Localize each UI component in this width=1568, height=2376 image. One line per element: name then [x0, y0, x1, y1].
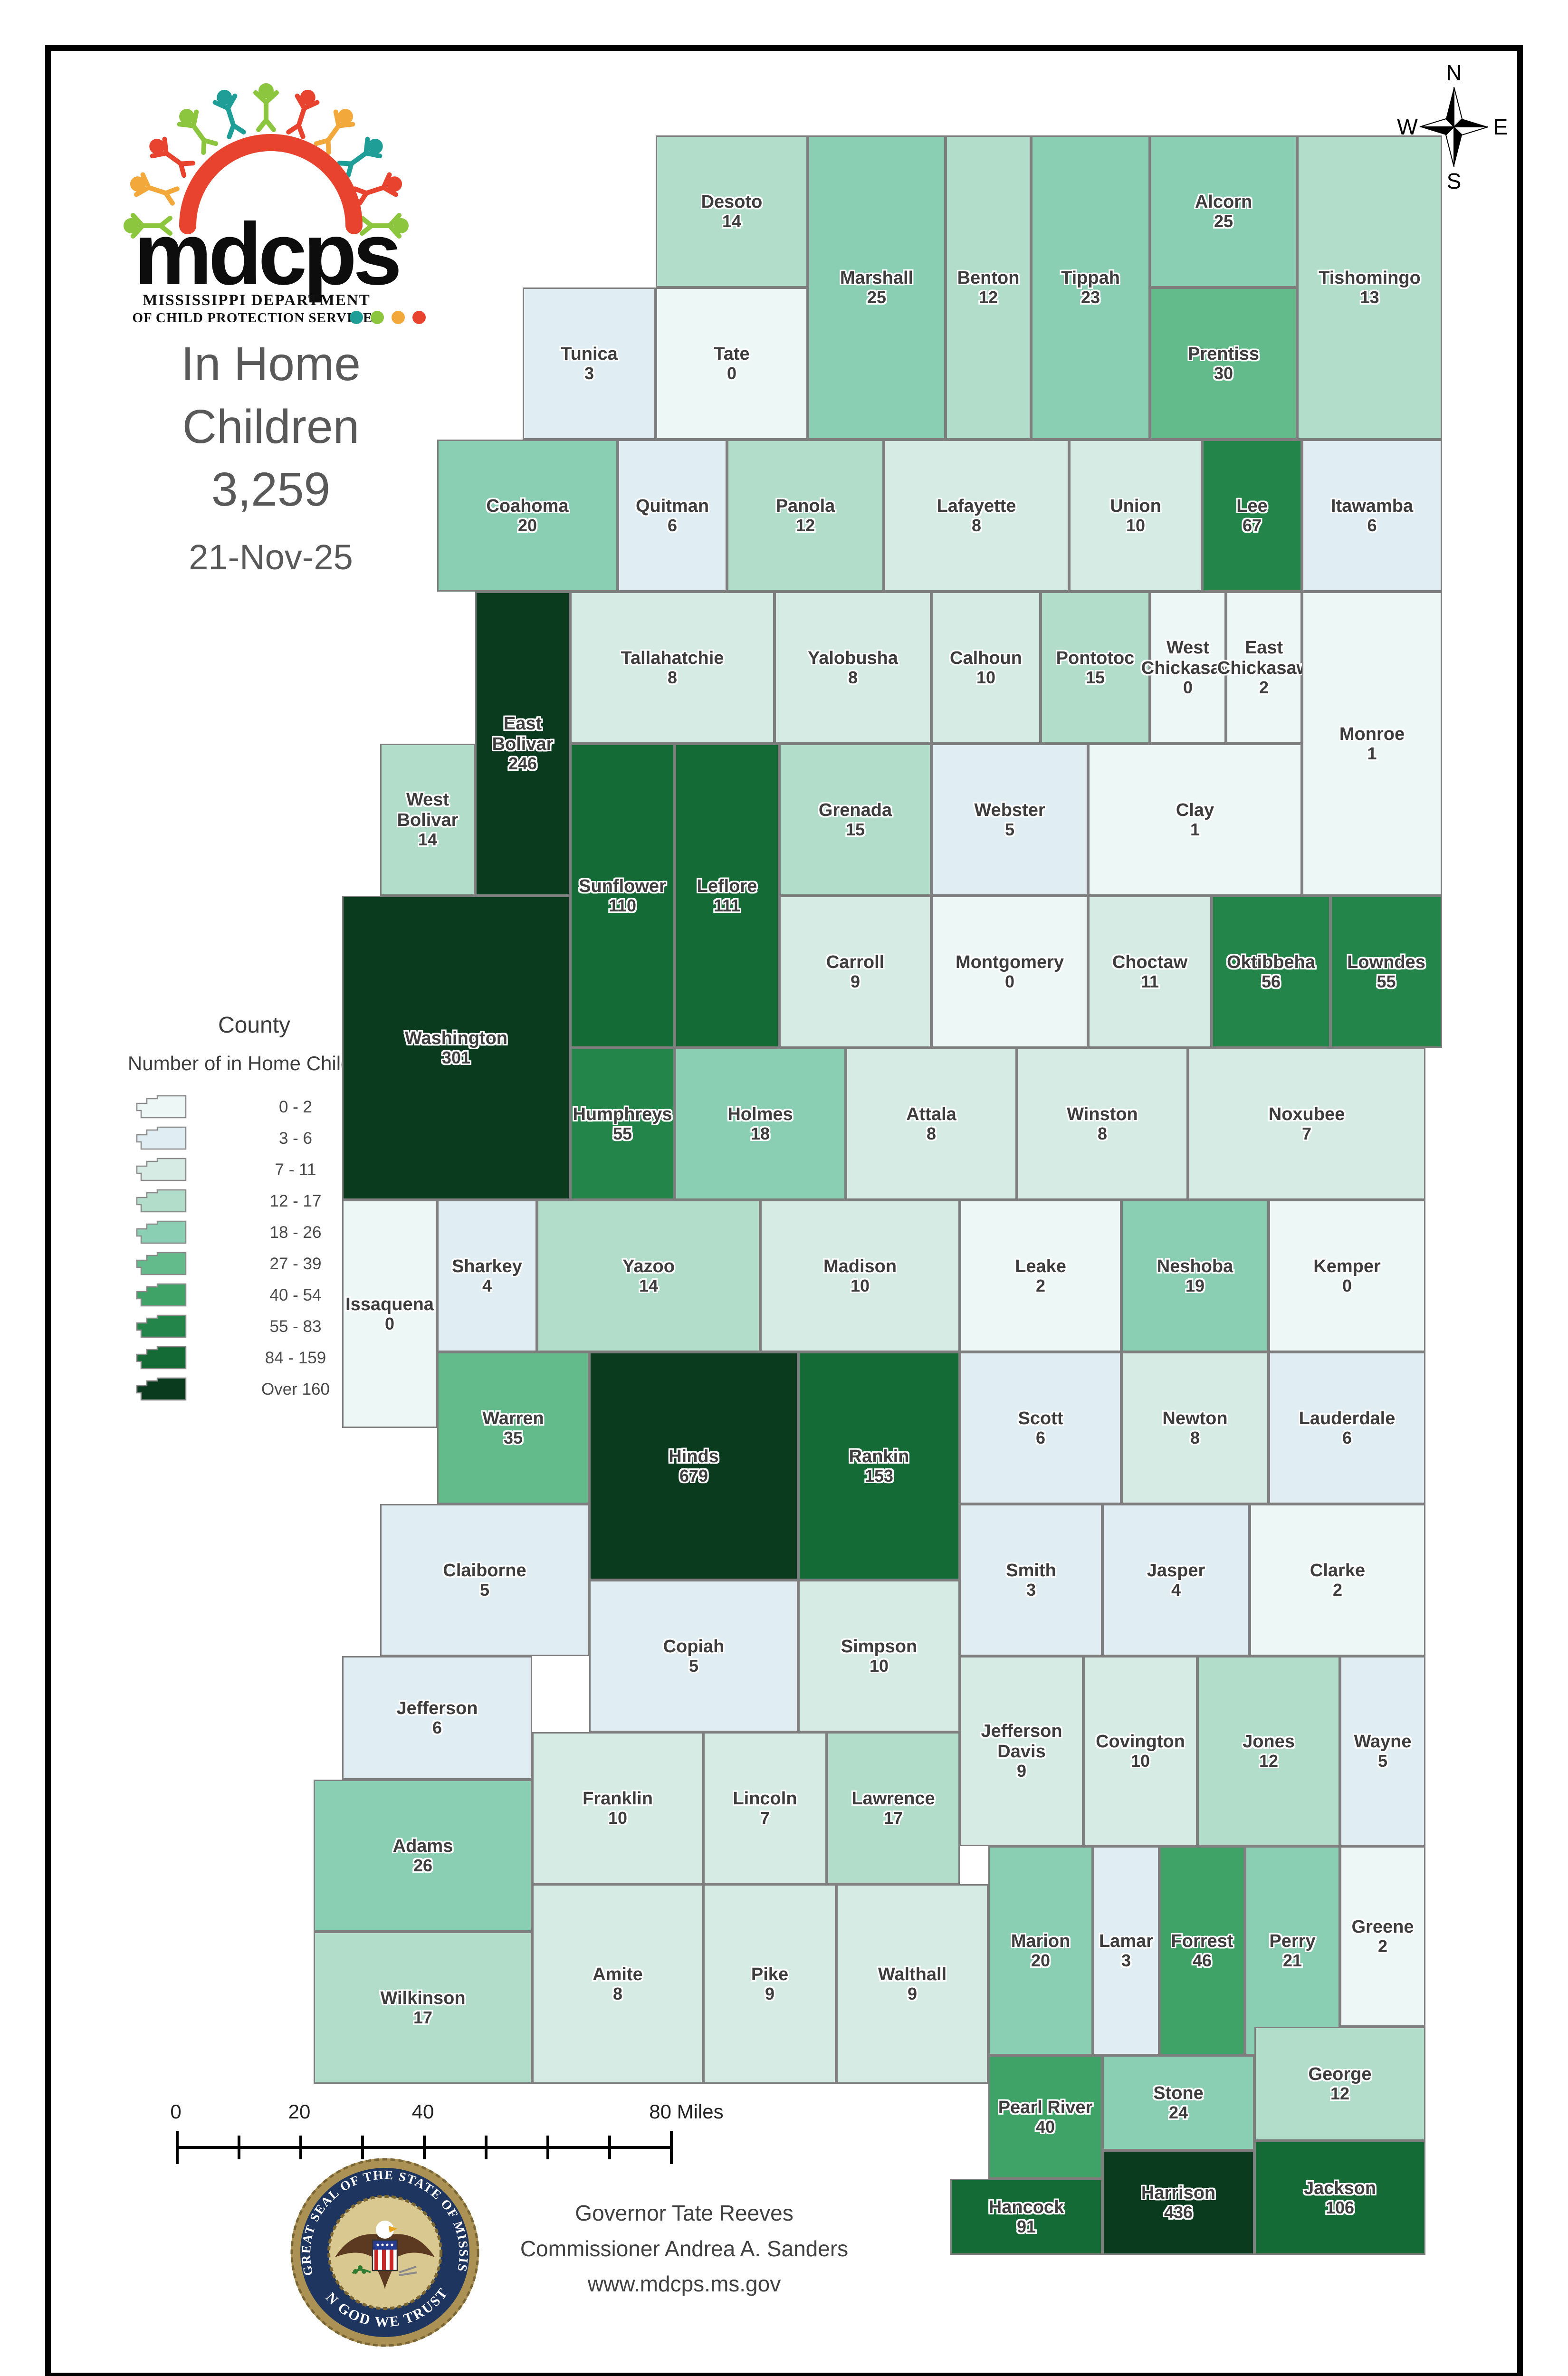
- county-name: Pontotoc: [1056, 648, 1135, 669]
- county-name: Jasper: [1147, 1561, 1205, 1581]
- county-region-sunflower: Sunflower110: [570, 744, 675, 1048]
- county-region-desoto: Desoto14: [656, 135, 808, 287]
- county-name: West Bolivar: [382, 790, 474, 830]
- county-name: Walthall: [878, 1964, 947, 1985]
- county-name: Issaquena: [345, 1294, 434, 1315]
- scale-bar: 0204080 Miles: [176, 2100, 670, 2167]
- county-value: 24: [1169, 2103, 1188, 2122]
- county-value: 25: [1214, 212, 1233, 231]
- county-value: 20: [1031, 1951, 1050, 1970]
- county-name: Prentiss: [1188, 344, 1259, 364]
- county-name: Rankin: [849, 1447, 909, 1467]
- county-region-lee: Lee67: [1202, 440, 1302, 592]
- county-name: Yazoo: [622, 1256, 675, 1277]
- county-value: 67: [1243, 516, 1262, 535]
- scale-tick: [670, 2131, 673, 2164]
- county-value: 13: [1360, 288, 1379, 307]
- county-value: 18: [751, 1124, 770, 1143]
- mississippi-county-map: Desoto14Marshall25Benton12Tippah23Alcorn…: [143, 135, 1454, 2260]
- county-region-pontotoc: Pontotoc15: [1041, 592, 1150, 744]
- county-name: Leflore: [697, 876, 757, 897]
- county-value: 10: [1131, 1752, 1150, 1771]
- county-region-jasper: Jasper4: [1102, 1504, 1250, 1656]
- county-region-lincoln: Lincoln7: [703, 1732, 827, 1884]
- scale-tick: [608, 2136, 611, 2159]
- county-value: 2: [1036, 1276, 1045, 1295]
- county-region-marshall: Marshall25: [808, 135, 946, 440]
- county-value: 153: [865, 1466, 893, 1485]
- county-region-coahoma: Coahoma20: [437, 440, 618, 592]
- county-value: 0: [385, 1314, 394, 1333]
- scale-tick: [176, 2131, 179, 2164]
- county-name: Tishomingo: [1319, 268, 1421, 288]
- county-name: Quitman: [636, 496, 709, 517]
- county-value: 12: [979, 288, 998, 307]
- county-region-montgomery: Montgomery0: [931, 896, 1088, 1048]
- county-name: Lamar: [1099, 1931, 1153, 1952]
- county-region-winston: Winston8: [1017, 1048, 1188, 1200]
- county-value: 0: [1005, 972, 1014, 991]
- scale-tick: [485, 2136, 488, 2159]
- county-name: Lincoln: [733, 1789, 797, 1809]
- county-region-neshoba: Neshoba19: [1121, 1200, 1269, 1352]
- county-region-monroe: Monroe1: [1302, 592, 1442, 896]
- county-region-marion: Marion20: [988, 1846, 1093, 2055]
- county-name: Clay: [1176, 800, 1214, 821]
- county-region-smith: Smith3: [960, 1504, 1102, 1656]
- county-name: Simpson: [841, 1637, 917, 1657]
- county-value: 246: [508, 754, 537, 773]
- county-value: 0: [1342, 1276, 1352, 1295]
- county-region-webster: Webster5: [931, 744, 1088, 896]
- county-region-west-bolivar: West Bolivar14: [380, 744, 475, 896]
- county-name: Covington: [1096, 1732, 1185, 1752]
- county-name: Marshall: [840, 268, 913, 288]
- county-name: Tippah: [1061, 268, 1120, 288]
- county-region-west-chickasaw: West Chickasaw0: [1150, 592, 1226, 744]
- county-region-harrison: Harrison436: [1102, 2150, 1254, 2255]
- county-region-warren: Warren35: [437, 1352, 589, 1504]
- county-region-stone: Stone24: [1102, 2055, 1254, 2150]
- county-name: Monroe: [1339, 724, 1405, 745]
- county-name: Calhoun: [950, 648, 1022, 669]
- governor-line: Governor Tate Reeves: [489, 2195, 879, 2231]
- county-region-clarke: Clarke2: [1250, 1504, 1425, 1656]
- county-value: 110: [609, 896, 636, 915]
- county-region-lawrence: Lawrence17: [827, 1732, 960, 1884]
- county-name: Attala: [906, 1104, 956, 1125]
- county-value: 9: [765, 1984, 774, 2003]
- county-name: Stone: [1153, 2083, 1204, 2104]
- scale-tick: [238, 2136, 240, 2159]
- county-name: Holmes: [727, 1104, 793, 1125]
- county-region-leake: Leake2: [960, 1200, 1121, 1352]
- county-region-madison: Madison10: [760, 1200, 960, 1352]
- county-region-east-bolivar: East Bolivar246: [475, 592, 570, 896]
- county-region-calhoun: Calhoun10: [931, 592, 1041, 744]
- county-name: Noxubee: [1269, 1104, 1345, 1125]
- county-region-benton: Benton12: [946, 135, 1031, 440]
- compass-east-label: E: [1493, 115, 1508, 139]
- website-line: www.mdcps.ms.gov: [489, 2266, 879, 2302]
- county-value: 14: [418, 830, 437, 849]
- county-name: Jones: [1243, 1732, 1295, 1752]
- county-name: Lafayette: [937, 496, 1016, 517]
- scale-label: 20: [288, 2100, 311, 2123]
- county-value: 2: [1378, 1937, 1387, 1956]
- county-value: 0: [1183, 678, 1193, 697]
- commissioner-line: Commissioner Andrea A. Sanders: [489, 2231, 879, 2267]
- county-name: Yalobusha: [808, 648, 898, 669]
- county-region-jackson: Jackson106: [1254, 2141, 1425, 2255]
- county-name: Tunica: [561, 344, 618, 364]
- county-region-rankin: Rankin153: [798, 1352, 960, 1580]
- county-value: 21: [1283, 1951, 1302, 1970]
- county-value: 91: [1017, 2217, 1036, 2236]
- county-value: 4: [482, 1276, 492, 1295]
- county-value: 4: [1171, 1581, 1181, 1600]
- county-name: Adams: [393, 1836, 453, 1857]
- scale-tick: [299, 2136, 302, 2159]
- county-region-lamar: Lamar3: [1093, 1846, 1159, 2055]
- county-region-alcorn: Alcorn25: [1150, 135, 1297, 287]
- county-name: Kemper: [1313, 1256, 1381, 1277]
- county-value: 3: [584, 364, 594, 383]
- county-value: 17: [884, 1809, 903, 1828]
- county-name: Choctaw: [1112, 952, 1187, 973]
- county-name: Benton: [957, 268, 1020, 288]
- scale-tick: [423, 2136, 426, 2159]
- county-value: 0: [727, 364, 736, 383]
- county-name: Montgomery: [956, 952, 1064, 973]
- county-value: 12: [1330, 2084, 1349, 2103]
- county-name: Pike: [751, 1964, 788, 1985]
- county-region-sharkey: Sharkey4: [437, 1200, 537, 1352]
- county-name: Lauderdale: [1299, 1408, 1396, 1429]
- county-value: 301: [442, 1048, 470, 1067]
- county-name: Lowndes: [1347, 952, 1425, 973]
- county-value: 26: [413, 1856, 432, 1875]
- county-name: Jackson: [1304, 2178, 1376, 2199]
- county-region-copiah: Copiah5: [589, 1580, 798, 1732]
- county-region-hancock: Hancock91: [950, 2179, 1102, 2255]
- county-region-kemper: Kemper0: [1269, 1200, 1425, 1352]
- county-value: 15: [846, 820, 865, 839]
- county-name: Scott: [1018, 1408, 1063, 1429]
- county-region-lowndes: Lowndes55: [1330, 896, 1442, 1048]
- county-value: 2: [1259, 678, 1269, 697]
- county-name: Clarke: [1310, 1561, 1365, 1581]
- county-region-pearl-river: Pearl River40: [988, 2055, 1102, 2179]
- county-name: Perry: [1269, 1931, 1315, 1952]
- county-region-greene: Greene2: [1340, 1846, 1425, 2027]
- county-name: Itawamba: [1331, 496, 1413, 517]
- county-region-walthall: Walthall9: [836, 1884, 988, 2084]
- county-name: Jefferson Davis: [961, 1721, 1082, 1762]
- county-value: 5: [480, 1581, 489, 1600]
- county-value: 35: [504, 1428, 523, 1447]
- county-region-newton: Newton8: [1121, 1352, 1269, 1504]
- county-value: 7: [1302, 1124, 1311, 1143]
- county-name: Pearl River: [998, 2098, 1093, 2118]
- county-region-wayne: Wayne5: [1340, 1656, 1425, 1846]
- county-region-carroll: Carroll9: [779, 896, 931, 1048]
- county-name: Alcorn: [1195, 192, 1252, 212]
- county-value: 3: [1121, 1951, 1131, 1970]
- county-value: 6: [1342, 1428, 1352, 1447]
- county-name: Newton: [1162, 1408, 1227, 1429]
- county-name: Winston: [1067, 1104, 1138, 1125]
- county-name: Amite: [593, 1964, 643, 1985]
- county-region-wilkinson: Wilkinson17: [314, 1932, 532, 2084]
- county-name: Neshoba: [1157, 1256, 1233, 1277]
- county-region-washington: Washington301: [342, 896, 570, 1200]
- county-region-issaquena: Issaquena0: [342, 1200, 437, 1428]
- county-region-choctaw: Choctaw11: [1088, 896, 1212, 1048]
- county-value: 15: [1086, 668, 1105, 687]
- county-region-tallahatchie: Tallahatchie8: [570, 592, 774, 744]
- county-region-tishomingo: Tishomingo13: [1297, 135, 1442, 440]
- county-name: Lee: [1236, 496, 1267, 517]
- county-value: 19: [1186, 1276, 1205, 1295]
- county-region-scott: Scott6: [960, 1352, 1121, 1504]
- county-name: Carroll: [826, 952, 884, 973]
- county-value: 40: [1036, 2117, 1055, 2136]
- county-region-attala: Attala8: [846, 1048, 1017, 1200]
- county-name: Webster: [974, 800, 1045, 821]
- county-name: Lawrence: [851, 1789, 935, 1809]
- county-name: Coahoma: [486, 496, 568, 517]
- county-value: 2: [1333, 1581, 1342, 1600]
- county-name: Wilkinson: [380, 1988, 465, 2009]
- county-region-panola: Panola12: [727, 440, 884, 592]
- logo-person-icon: [286, 87, 320, 138]
- county-value: 8: [668, 668, 677, 687]
- county-value: 8: [927, 1124, 936, 1143]
- county-region-claiborne: Claiborne5: [380, 1504, 589, 1656]
- mississippi-state-seal-icon: THE GREAT SEAL OF THE STATE OF MISSISSIP…: [290, 2157, 480, 2347]
- scale-label: 0: [170, 2100, 181, 2123]
- county-value: 6: [668, 516, 677, 535]
- county-region-jefferson: Jefferson6: [342, 1656, 532, 1780]
- county-value: 6: [1367, 516, 1377, 535]
- county-value: 17: [413, 2008, 432, 2027]
- county-region-lafayette: Lafayette8: [884, 440, 1069, 592]
- county-region-perry: Perry21: [1245, 1846, 1340, 2055]
- county-name: Union: [1110, 496, 1161, 517]
- county-region-tippah: Tippah23: [1031, 135, 1150, 440]
- county-region-clay: Clay1: [1088, 744, 1302, 896]
- county-region-franklin: Franklin10: [532, 1732, 703, 1884]
- county-value: 5: [1378, 1752, 1387, 1771]
- county-value: 55: [1377, 972, 1396, 991]
- county-name: Greene: [1352, 1917, 1414, 1937]
- county-value: 12: [796, 516, 815, 535]
- county-name: Hinds: [669, 1447, 719, 1467]
- county-name: Jefferson: [396, 1698, 478, 1719]
- county-name: Wayne: [1354, 1732, 1411, 1752]
- county-name: Madison: [823, 1256, 897, 1277]
- county-value: 14: [639, 1276, 658, 1295]
- county-region-tunica: Tunica3: [523, 287, 656, 440]
- county-name: Claiborne: [443, 1561, 526, 1581]
- county-value: 1: [1367, 744, 1377, 763]
- county-value: 9: [908, 1984, 917, 2003]
- county-value: 106: [1326, 2198, 1354, 2217]
- county-value: 8: [848, 668, 858, 687]
- county-region-east-chickasaw: East Chickasaw2: [1226, 592, 1302, 744]
- county-name: Warren: [482, 1408, 544, 1429]
- county-value: 10: [851, 1276, 870, 1295]
- county-name: Sunflower: [579, 876, 666, 897]
- county-value: 8: [972, 516, 981, 535]
- county-region-forrest: Forrest46: [1159, 1846, 1245, 2055]
- county-value: 111: [714, 896, 740, 915]
- footer-credits: Governor Tate Reeves Commissioner Andrea…: [489, 2195, 879, 2302]
- county-region-holmes: Holmes18: [675, 1048, 846, 1200]
- scale-tick: [361, 2136, 364, 2159]
- county-name: Tallahatchie: [621, 648, 724, 669]
- county-value: 10: [608, 1809, 627, 1828]
- county-name: Marion: [1011, 1931, 1071, 1952]
- scale-label: 40: [412, 2100, 434, 2123]
- county-value: 56: [1262, 972, 1281, 991]
- county-name: Humphreys: [573, 1104, 672, 1125]
- county-region-hinds: Hinds679: [589, 1352, 798, 1580]
- county-region-itawamba: Itawamba6: [1302, 440, 1442, 592]
- county-region-adams: Adams26: [314, 1780, 532, 1932]
- county-region-yalobusha: Yalobusha8: [774, 592, 931, 744]
- county-region-quitman: Quitman6: [618, 440, 727, 592]
- county-value: 10: [976, 668, 995, 687]
- county-name: East Chickasaw: [1217, 638, 1310, 678]
- county-name: Hancock: [989, 2197, 1064, 2218]
- county-value: 1: [1190, 820, 1200, 839]
- county-value: 6: [1036, 1428, 1045, 1447]
- county-region-simpson: Simpson10: [798, 1580, 960, 1732]
- county-region-oktibbeha: Oktibbeha56: [1212, 896, 1330, 1048]
- county-value: 8: [1098, 1124, 1107, 1143]
- county-value: 30: [1214, 364, 1233, 383]
- county-value: 10: [1126, 516, 1145, 535]
- county-value: 46: [1193, 1951, 1212, 1970]
- county-value: 14: [722, 212, 741, 231]
- logo-person-icon: [212, 87, 246, 138]
- county-name: Oktibbeha: [1227, 952, 1315, 973]
- county-value: 679: [679, 1466, 708, 1485]
- county-value: 23: [1081, 288, 1100, 307]
- county-value: 25: [867, 288, 886, 307]
- county-name: Harrison: [1141, 2183, 1215, 2204]
- county-name: Washington: [405, 1028, 507, 1049]
- county-value: 5: [1005, 820, 1014, 839]
- county-region-yazoo: Yazoo14: [537, 1200, 760, 1352]
- county-name: Copiah: [663, 1637, 725, 1657]
- county-value: 6: [432, 1718, 442, 1737]
- county-name: Sharkey: [452, 1256, 522, 1277]
- county-value: 7: [760, 1809, 770, 1828]
- county-region-amite: Amite8: [532, 1884, 703, 2084]
- county-value: 10: [870, 1657, 889, 1676]
- county-region-grenada: Grenada15: [779, 744, 931, 896]
- county-region-leflore: Leflore111: [675, 744, 779, 1048]
- county-value: 3: [1026, 1581, 1036, 1600]
- county-value: 9: [1017, 1762, 1026, 1781]
- county-value: 8: [613, 1984, 622, 2003]
- county-value: 436: [1164, 2203, 1193, 2222]
- compass-north-label: N: [1446, 60, 1462, 85]
- county-name: Tate: [714, 344, 749, 364]
- county-value: 12: [1259, 1752, 1278, 1771]
- county-name: Leake: [1015, 1256, 1066, 1277]
- county-region-jones: Jones12: [1197, 1656, 1340, 1846]
- county-region-george: George12: [1254, 2027, 1425, 2141]
- scale-label: 80 Miles: [649, 2100, 723, 2123]
- county-region-humphreys: Humphreys55: [570, 1048, 675, 1200]
- county-name: Franklin: [583, 1789, 653, 1809]
- logo-person-icon: [256, 83, 277, 130]
- county-value: 20: [518, 516, 537, 535]
- county-region-noxubee: Noxubee7: [1188, 1048, 1425, 1200]
- county-name: East Bolivar: [477, 714, 569, 754]
- county-name: Forrest: [1171, 1931, 1233, 1952]
- county-value: 8: [1190, 1428, 1200, 1447]
- county-value: 5: [689, 1657, 698, 1676]
- county-region-prentiss: Prentiss30: [1150, 287, 1297, 440]
- county-region-pike: Pike9: [703, 1884, 836, 2084]
- county-name: Smith: [1006, 1561, 1056, 1581]
- county-region-union: Union10: [1069, 440, 1202, 592]
- scale-tick: [546, 2136, 549, 2159]
- county-value: 9: [851, 972, 860, 991]
- county-name: George: [1308, 2064, 1371, 2085]
- county-name: Grenada: [819, 800, 892, 821]
- county-name: Desoto: [701, 192, 763, 212]
- county-name: Panola: [776, 496, 835, 517]
- county-value: 11: [1141, 972, 1159, 991]
- county-value: 55: [613, 1124, 632, 1143]
- county-region-lauderdale: Lauderdale6: [1269, 1352, 1425, 1504]
- county-region-covington: Covington10: [1083, 1656, 1197, 1846]
- county-region-jefferson-davis: Jefferson Davis9: [960, 1656, 1083, 1846]
- county-region-tate: Tate0: [656, 287, 808, 440]
